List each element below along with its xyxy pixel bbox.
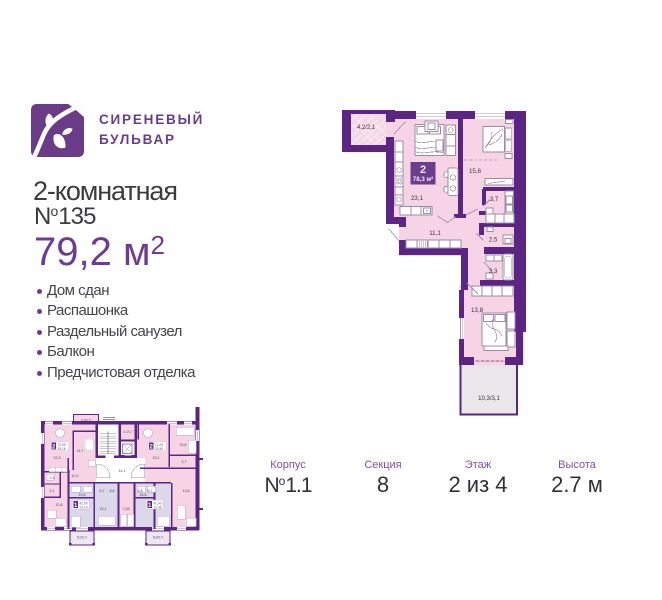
svg-text:15,6: 15,6 [469,168,482,175]
svg-text:10,3/3,1: 10,3/3,1 [478,396,500,402]
svg-text:5,7: 5,7 [148,489,153,493]
svg-text:2,5: 2,5 [489,237,498,244]
svg-text:11,1: 11,1 [119,469,126,473]
svg-text:14,7: 14,7 [77,449,84,453]
svg-text:10,1: 10,1 [72,474,79,478]
svg-text:2,1: 2,1 [50,489,55,493]
svg-text:13,1: 13,1 [100,507,107,511]
svg-text:5,0/2,7: 5,0/2,7 [77,536,87,540]
svg-text:13,8: 13,8 [471,307,484,314]
svg-text:13,8: 13,8 [56,503,63,507]
svg-text:15,6: 15,6 [180,443,187,447]
svg-text:3,3: 3,3 [489,268,498,275]
svg-text:12,14: 12,14 [79,505,88,509]
svg-text:22,5: 22,5 [54,456,61,460]
svg-text:11,1: 11,1 [429,230,441,237]
svg-text:7,08: 7,08 [123,507,130,511]
svg-text:5,7: 5,7 [100,489,105,493]
svg-text:8,6: 8,6 [110,489,115,493]
svg-text:19,4: 19,4 [79,493,86,497]
svg-text:3,7: 3,7 [182,460,187,464]
svg-text:12,46: 12,46 [153,505,162,509]
svg-text:4,8: 4,8 [138,489,143,493]
svg-text:23,1: 23,1 [153,456,160,460]
svg-text:23,1: 23,1 [411,195,424,202]
svg-text:6,2/0,7: 6,2/0,7 [123,430,133,434]
svg-text:78,3 м²: 78,3 м² [413,176,433,183]
svg-text:2,4: 2,4 [50,476,55,480]
svg-text:4,2/2,1: 4,2/2,1 [357,125,376,131]
svg-text:13,8: 13,8 [183,489,190,493]
svg-text:16,6: 16,6 [140,493,147,497]
svg-text:29,49: 29,49 [155,447,164,451]
svg-text:3,7: 3,7 [490,196,499,203]
svg-text:2: 2 [420,164,426,176]
svg-text:5,0/2,7: 5,0/2,7 [153,536,163,540]
svg-text:28,18: 28,18 [57,447,66,451]
